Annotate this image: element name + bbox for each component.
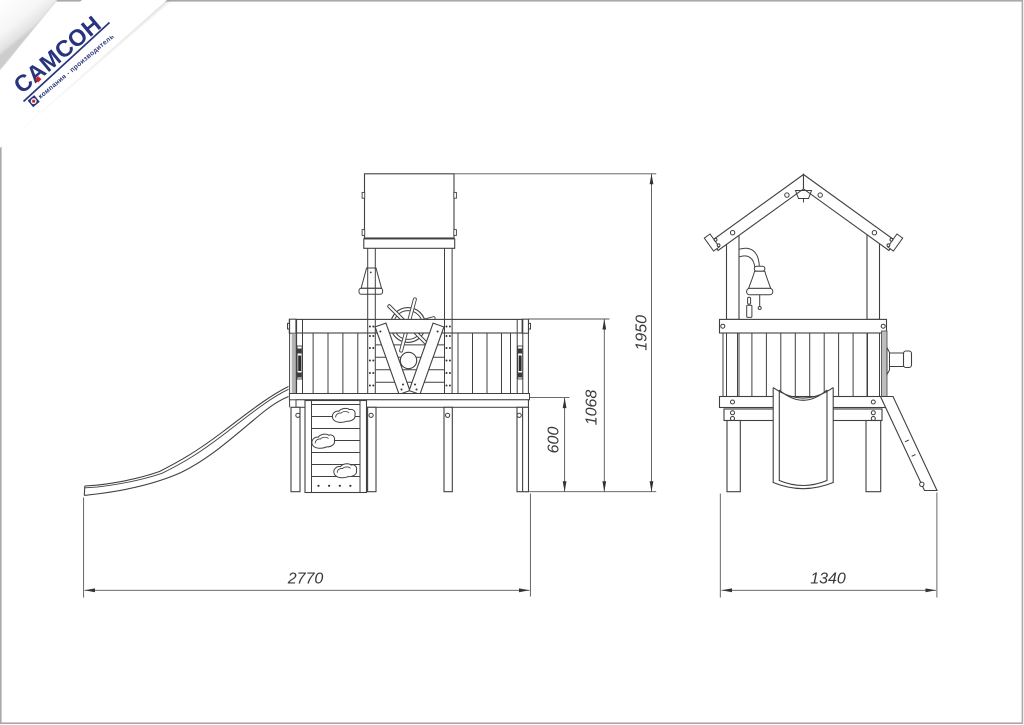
svg-text:1950: 1950: [633, 315, 650, 351]
svg-text:1068: 1068: [584, 390, 601, 426]
svg-text:1340: 1340: [810, 571, 846, 588]
svg-text:600: 600: [546, 427, 563, 454]
svg-text:2770: 2770: [287, 571, 324, 588]
